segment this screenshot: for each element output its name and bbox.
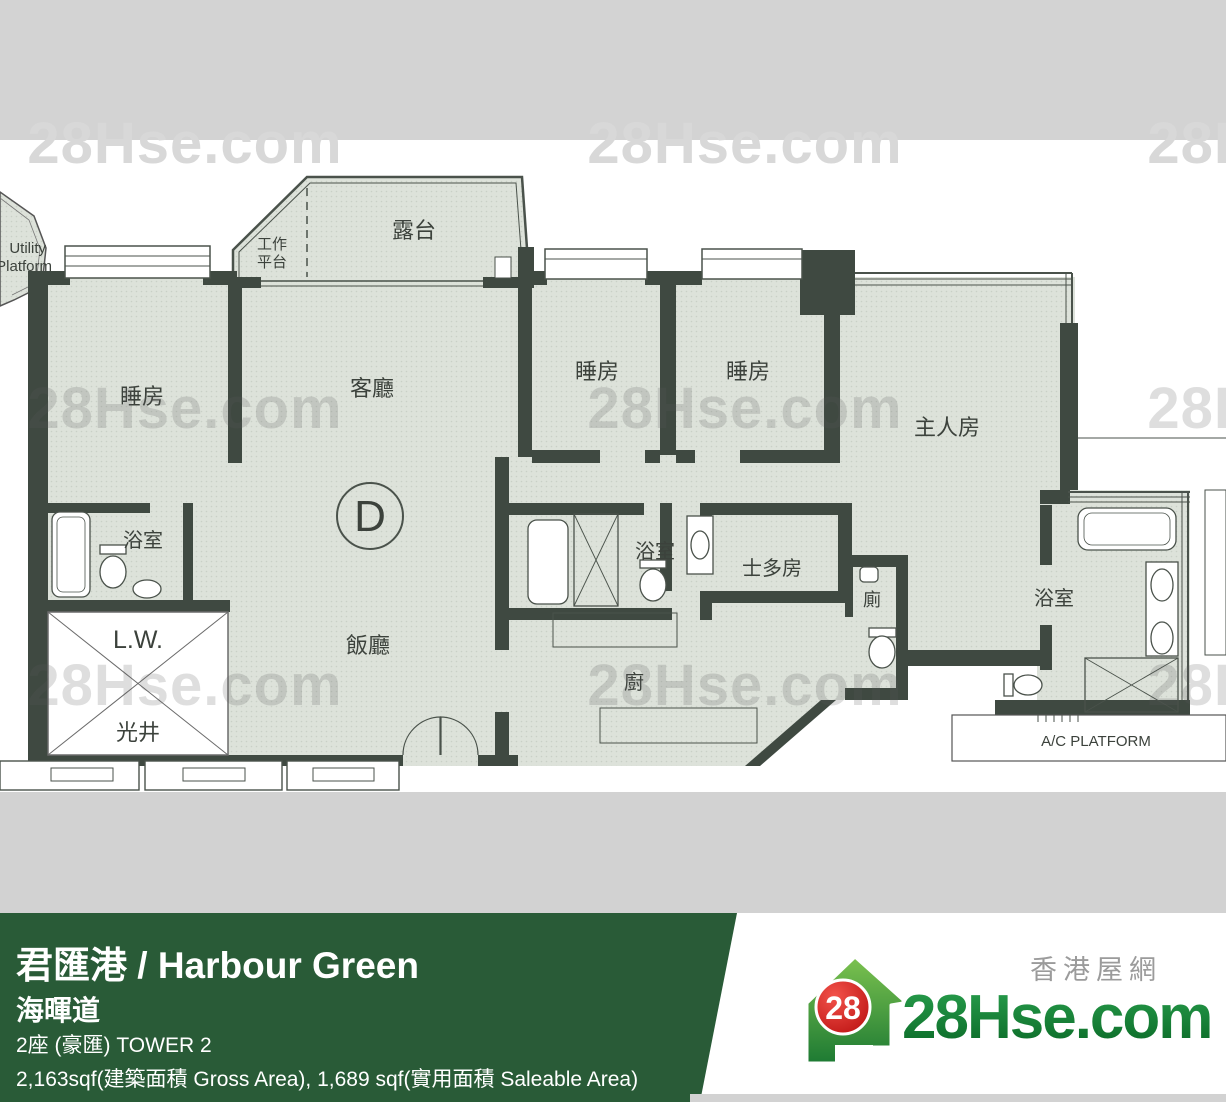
house-logo-icon: 28: [805, 945, 905, 1070]
logo-text: 28Hse.com: [902, 982, 1211, 1053]
watermark-text: 28Hse.com: [27, 376, 342, 441]
bathtub-icon: [528, 520, 568, 604]
bottom-gray-band: [0, 792, 1226, 913]
toilet-label: 廁: [863, 589, 881, 610]
watermark-text: 28Hse.com: [1147, 653, 1226, 718]
bathtub-icon: [1078, 508, 1176, 550]
bathtub-icon: [52, 512, 90, 597]
dining-label: 飯廳: [346, 633, 390, 658]
unit-letter-label: D: [354, 492, 386, 541]
bath-label: 浴室: [635, 540, 675, 563]
toilet-icon: [100, 556, 126, 588]
watermark-text: 28Hse.com: [1147, 111, 1226, 176]
ac-platform: A/C PLATFORM: [952, 715, 1226, 761]
watermark-text: 28Hse.com: [1147, 376, 1226, 441]
basin-icon: [133, 580, 161, 598]
store-label: 士多房: [742, 557, 802, 580]
balcony-label: 露台: [392, 218, 436, 243]
bath-label: 浴室: [1034, 587, 1074, 610]
work-platform-label: 平台: [257, 254, 287, 271]
tower-info: 2座 (豪匯) TOWER 2: [16, 1029, 212, 1059]
site-brand: 香港屋網 28 28Hse.com: [780, 920, 1226, 1094]
lightwell-label: 光井: [116, 720, 160, 745]
bath-label: 浴室: [123, 529, 163, 552]
living-label: 客廳: [350, 376, 394, 401]
basin-icon: [860, 567, 878, 582]
bottom-edge-strip: [690, 1094, 1226, 1102]
toilet-icon: [1014, 675, 1042, 695]
estate-title: 君匯港 / Harbour Green: [16, 935, 419, 989]
ac-platform-label: A/C PLATFORM: [1041, 733, 1151, 750]
watermark-text: 28Hse.com: [27, 653, 342, 718]
floorplan-image: 28Hse.com 28Hse.com 28Hse.com Utility Pl…: [0, 0, 1226, 913]
watermark-text: 28Hse.com: [587, 653, 902, 718]
watermark-text: 28Hse.com: [587, 376, 902, 441]
footer-bar: 君匯港 / Harbour Green 海暉道 2座 (豪匯) TOWER 2 …: [0, 913, 760, 1102]
area-info: 2,163sqf(建築面積 Gross Area), 1,689 sqf(實用面…: [16, 1063, 638, 1093]
toilet-icon: [640, 569, 666, 601]
watermark-text: 28Hse.com: [27, 111, 342, 176]
logo-badge: 28: [825, 990, 861, 1026]
lw-label: L.W.: [113, 626, 163, 654]
cistern: [1004, 674, 1013, 696]
master-label: 主人房: [914, 415, 980, 440]
work-platform-label: 工作: [257, 236, 287, 253]
utility-platform-label: Utility: [9, 240, 46, 257]
street-name: 海暉道: [16, 989, 100, 1029]
bay-windows: [0, 761, 399, 790]
watermark-text: 28Hse.com: [587, 111, 902, 176]
